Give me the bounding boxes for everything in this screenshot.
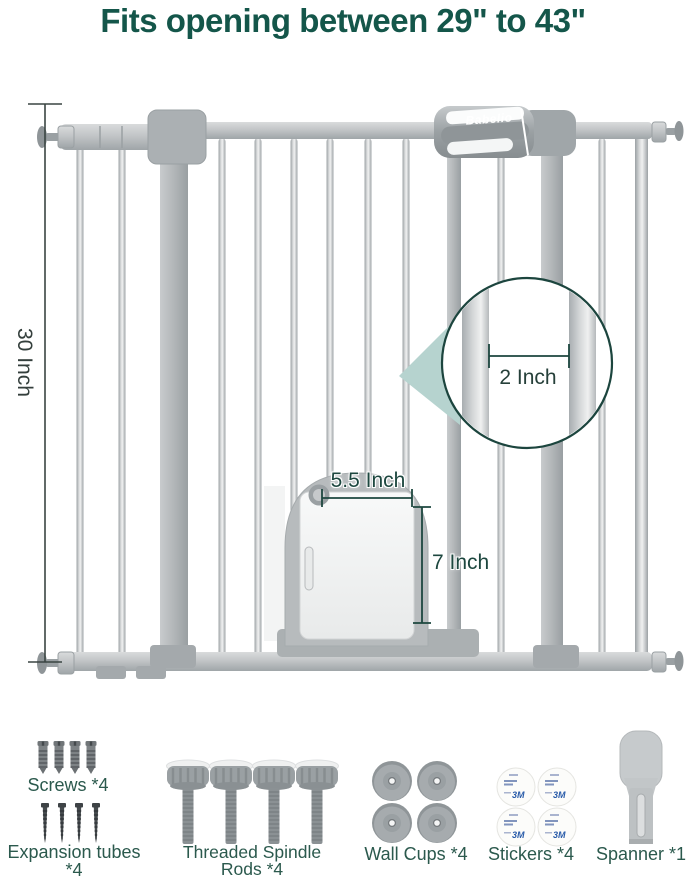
top-rail [150,122,652,139]
hinge-post-foot [150,645,196,668]
hinge-block [148,110,206,164]
3m-logo: 3M [512,830,525,840]
product-diagram: 3M 3M 3M 3M Fits opening between 29" to … [0,0,686,879]
accessory-wall-cups [372,761,457,843]
screws-label: Screws *4 [8,776,128,794]
pressure-knob-top-left [37,126,74,148]
right-pressure-tube [635,132,648,658]
accessory-stickers: 3M 3M 3M 3M [497,768,576,846]
pressure-knob-bottom-left [37,652,74,674]
pressure-knob-top-right [652,121,684,142]
accessory-expansion-tubes [41,803,100,843]
spindle-rods-label-line2: Rods *4 [221,859,283,879]
gate-height-dimension-label: 30 Inch [12,328,36,397]
accessory-screws [38,741,97,774]
3m-logo: 3M [512,790,525,800]
spindle-rods-label: Threaded Spindle Rods *4 [169,844,335,878]
latch-post-foot [533,645,579,668]
gate-illustration: 3M 3M 3M 3M [0,0,686,879]
pet-door-panel [300,492,414,639]
accessory-spanner [620,731,662,844]
3m-logo: 3M [553,790,566,800]
3m-logo: 3M [553,830,566,840]
stickers-label: Stickers *4 [469,845,593,863]
magnifier-callout [399,278,612,448]
bar-spacing-dimension-label: 2 Inch [487,366,569,390]
pet-door-width-dimension-label: 5.5 Inch [320,469,416,493]
pet-door-handle-slot [305,547,313,590]
expansion-tubes-label: Expansion tubes *4 [0,843,148,879]
wall-cups-label: Wall Cups *4 [351,845,481,863]
page-title: Fits opening between 29" to 43" [0,2,686,40]
spanner-label: Spanner *1 [584,845,686,863]
accessory-spindle-rods [167,760,339,844]
pet-door-height-dimension-label: 7 Inch [432,551,489,575]
pressure-knob-bottom-right [652,651,684,672]
hinge-post [160,158,188,656]
